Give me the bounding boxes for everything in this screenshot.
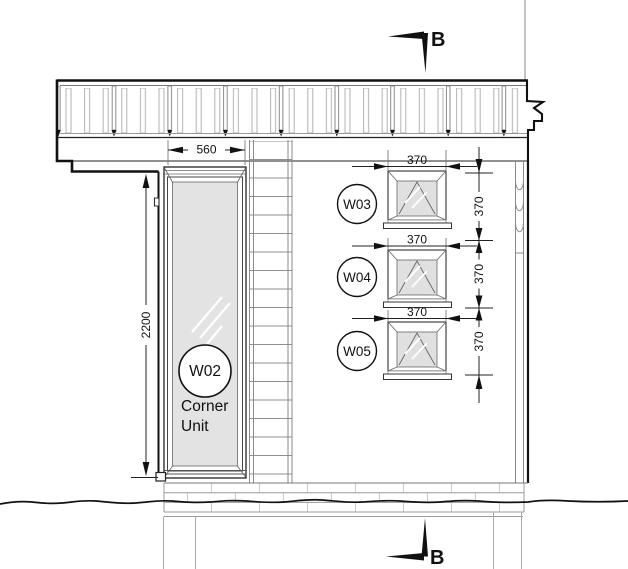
corner-trim-boards (250, 141, 292, 483)
dim-value-w03-width: 370 (407, 153, 427, 167)
window-w02: W02 Corner Unit (156, 167, 246, 481)
roof-band (56, 81, 529, 138)
dim-value-w04-width: 370 (407, 233, 427, 247)
dim-value-w04-height: 370 (472, 264, 486, 284)
w05-sill (384, 374, 452, 380)
wall-corner-jog (155, 198, 159, 206)
dim-value-560: 560 (196, 143, 216, 157)
dim-value-2200: 2200 (139, 311, 153, 338)
brick-course (164, 483, 524, 493)
w05-tag-label: W05 (343, 344, 371, 359)
roof-fixing-field (56, 86, 518, 137)
dim-value-w03-height: 370 (472, 196, 486, 216)
w03-tag-label: W03 (343, 197, 371, 212)
elevation-svg: W02 Corner Unit 560 2200 (0, 0, 628, 569)
w03-glazing (397, 181, 437, 216)
elevation-drawing: W02 Corner Unit 560 2200 (0, 0, 628, 569)
dim-value-w05-width: 370 (407, 305, 427, 319)
w03-sill (384, 223, 452, 229)
w02-tag-label: W02 (189, 363, 221, 380)
brick-base (164, 483, 528, 517)
section-label-bottom: B (430, 547, 444, 569)
w04-glazing (397, 260, 437, 295)
brick-course (164, 502, 524, 512)
dim-value-w05-height: 370 (472, 331, 486, 351)
w04-tag-label: W04 (343, 270, 371, 285)
corner-trim (250, 140, 293, 483)
w02-sill-tab (156, 473, 166, 482)
section-label-top: B (431, 29, 445, 51)
w05-glazing (397, 332, 437, 367)
w02-note-line2: Unit (181, 418, 209, 435)
w02-note-line1: Corner (181, 398, 228, 415)
